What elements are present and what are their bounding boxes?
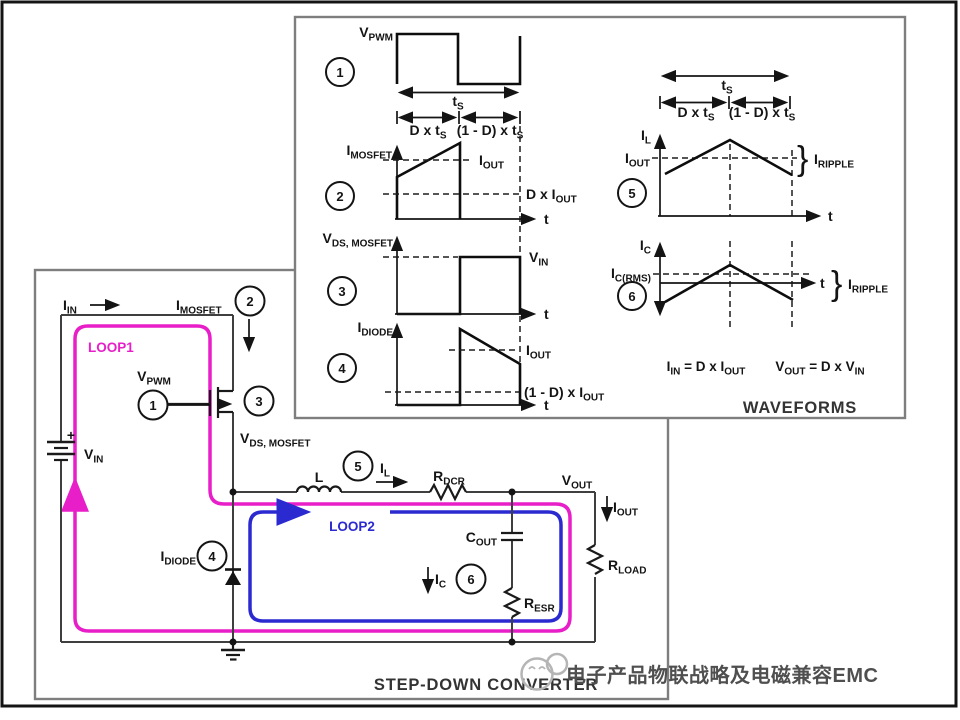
output-node-dot [509,489,516,496]
step-1-circuit: 1 [149,398,156,413]
waveforms-title: WAVEFORMS [743,399,857,417]
iripple-brace-w6: } [831,265,842,303]
inductor-label: L [315,469,324,485]
t-axis-label-w6: t [820,275,825,291]
iripple-brace-w5: } [797,140,808,178]
switch-node-dot [230,489,237,496]
loop2-label: LOOP2 [329,519,375,534]
waveform-panel [295,17,905,418]
converter-title: STEP-DOWN CONVERTER [374,676,598,694]
step-6-wave: 6 [628,289,635,304]
t-axis-label-w4: t [544,397,549,413]
step-4-wave: 4 [338,361,346,376]
step-4-circuit: 4 [208,549,216,564]
step-1-wave: 1 [336,65,343,80]
battery-plus-sign: + [67,427,75,443]
t-axis-label-w5: t [828,208,833,224]
step-2-wave: 2 [336,189,343,204]
cap-return-node-dot [509,639,516,646]
step-down-converter-figure: + VIN L RDCR COUT RESR RLOAD [0,0,960,720]
loop1-label: LOOP1 [88,340,134,355]
diode-return-node-dot [230,639,237,646]
diagram-canvas: + VIN L RDCR COUT RESR RLOAD [0,0,960,720]
step-5-circuit: 5 [354,459,361,474]
step-3-circuit: 3 [255,394,262,409]
watermark-text: 电子产品物联战略及电磁兼容EMC [566,663,878,687]
step-3-wave: 3 [338,284,345,299]
step-2-circuit: 2 [246,294,253,309]
step-5-wave: 5 [628,186,635,201]
t-axis-label-w3: t [544,306,549,322]
t-axis-label-w2: t [544,211,549,227]
step-6-circuit: 6 [467,572,474,587]
